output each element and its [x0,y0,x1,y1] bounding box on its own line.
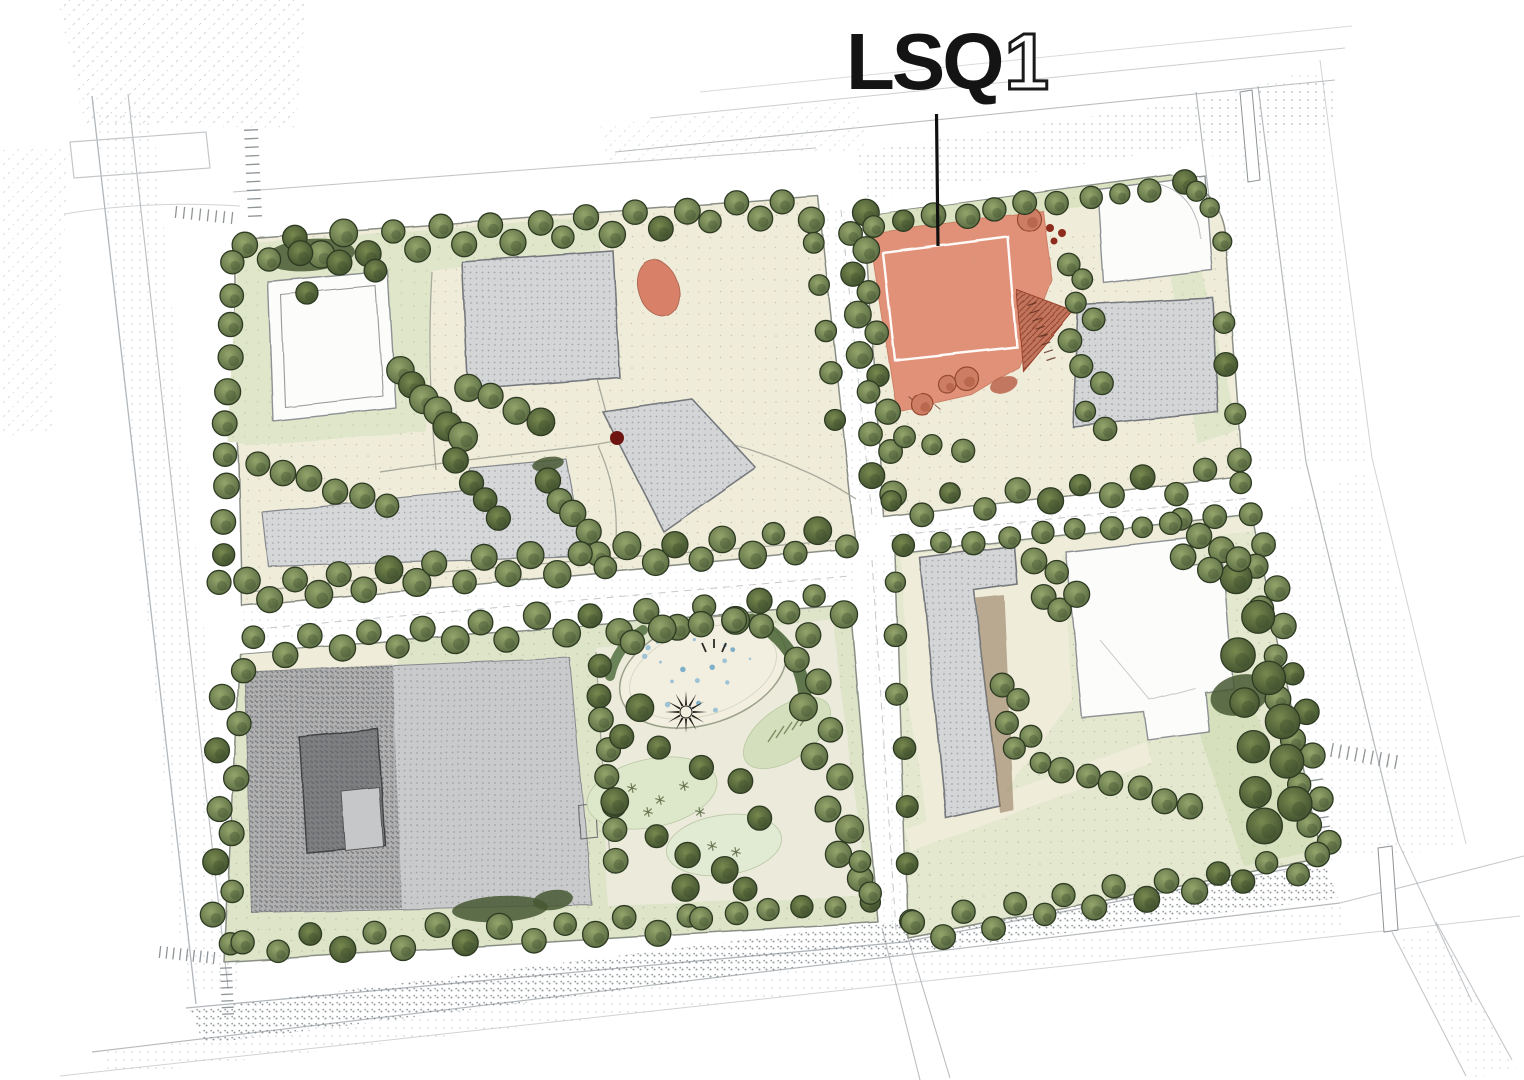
tree [675,198,701,224]
tree [815,320,836,341]
tree [494,627,519,652]
plaza-feature-dot [610,431,624,445]
crosswalk [244,130,262,217]
tree [1100,483,1125,508]
tree [1207,862,1230,885]
tree [221,880,243,902]
tree [1052,884,1075,907]
tree [806,669,831,694]
tree [626,694,654,722]
site-plan-map [0,0,1524,1080]
tree [1110,184,1130,204]
tree [1165,483,1188,506]
tree [583,921,609,947]
tree [376,494,399,517]
tree [554,913,576,935]
tree [815,796,841,822]
tree [672,874,699,901]
tree [357,620,381,644]
tree [1305,842,1329,866]
tree [1221,638,1255,672]
tree [809,275,830,296]
tree [1007,689,1029,711]
tree [1102,875,1125,898]
tree [1082,308,1105,331]
tree [699,210,721,232]
tree [1013,191,1037,215]
tree [956,204,980,228]
tree [820,362,842,384]
tree [452,232,477,257]
tree [645,825,668,848]
tree [962,532,985,555]
tree [1082,895,1107,920]
tree [749,614,773,638]
tree [1226,547,1251,572]
tree [689,547,713,571]
tree [612,906,635,929]
tree [220,284,243,307]
tree [1182,878,1208,904]
tree [1252,661,1285,694]
tree [777,601,800,624]
tree [246,452,270,476]
tree [875,399,900,424]
tree [288,241,313,266]
title-unit-number: 1 [1004,17,1046,106]
tree [647,736,670,759]
tree [1240,777,1271,808]
tree [623,200,647,224]
tree [952,900,975,923]
tree [722,608,747,633]
tree [553,619,581,647]
tree [865,321,888,344]
tree [884,624,906,646]
tree [748,806,772,830]
tree [351,577,376,602]
tree [231,931,254,954]
crosswalk [220,968,234,1015]
accent-dot [1051,238,1058,245]
tree [910,503,934,527]
tree [386,635,409,658]
tree [791,896,813,918]
tree [762,523,784,545]
tree [728,769,753,794]
tree [283,567,308,592]
tree [922,435,942,455]
tree [323,479,348,504]
tree [1203,505,1227,529]
tree [748,206,773,231]
tree [825,841,851,867]
tree [931,925,956,950]
tree [827,764,853,790]
tree [931,532,951,552]
tree [881,491,901,511]
tree [257,587,283,613]
tree [527,408,555,436]
tree [1038,488,1064,514]
tree [846,342,873,369]
tree [595,765,619,789]
tree [227,712,251,736]
tree [495,561,521,587]
tree [610,725,634,749]
tree [1065,292,1086,313]
tree [1070,355,1093,378]
tree [983,198,1006,221]
tree [211,510,236,535]
tree [422,551,447,576]
tree [603,818,627,842]
tree [859,422,883,446]
water-speckle [693,638,696,641]
tree [886,683,908,705]
tree [234,567,260,593]
tree [940,483,960,503]
tree [1270,744,1304,778]
tree [205,738,230,763]
tree [221,251,244,274]
tree [242,626,264,648]
water-speckle [670,679,674,683]
tree [803,585,825,607]
tree [587,684,611,708]
tree [517,542,544,569]
tree [836,815,864,843]
accent-dot [1046,224,1054,232]
tree [257,248,280,271]
tree [270,460,295,485]
tree [1004,892,1027,915]
tree [688,612,713,637]
tree [845,301,872,328]
tree [1100,517,1123,540]
tree [471,544,497,570]
tree [603,849,628,874]
tree [1064,581,1090,607]
tree [830,601,857,628]
tree [326,562,351,587]
tree [893,210,914,231]
tree [329,635,355,661]
tree [1134,886,1160,912]
tree [594,556,616,578]
tree [552,226,574,248]
tree [999,527,1021,549]
tree [207,570,231,594]
water-speckle [730,647,735,652]
tree [896,853,917,874]
tree [213,443,236,466]
tree [1170,544,1195,569]
tree [1230,688,1259,717]
tree [273,642,298,667]
tree [503,397,530,424]
tree [1098,771,1122,795]
tree [1194,458,1217,481]
tree [1264,576,1289,601]
tree [1200,198,1219,217]
tree [725,191,749,215]
tree [1080,186,1102,208]
tree [405,236,431,262]
tree [327,250,352,275]
tree [207,797,232,822]
tree [857,281,880,304]
tree [350,483,375,508]
tree [1072,269,1093,290]
tree [1030,753,1051,774]
tree [468,610,493,635]
tree [523,602,550,629]
tree [1045,192,1068,215]
tree [849,851,870,872]
tree [790,693,818,721]
tree [478,213,502,237]
tree [212,411,237,436]
tree [733,877,757,901]
tree [1049,758,1074,783]
median-island [1378,846,1398,932]
tree [798,207,824,233]
tree [739,541,766,568]
tree [588,654,611,677]
tree [528,211,553,236]
tree [573,205,598,230]
water-speckle [665,702,671,708]
tree [770,190,794,214]
tree [1265,704,1300,739]
crosswalk [175,206,232,224]
tree [1064,519,1085,540]
tree [1130,465,1155,490]
tree [522,929,546,953]
tree [784,541,807,564]
tree [690,907,713,930]
tree [853,237,879,263]
tree [1237,731,1269,763]
tree [382,220,405,243]
tree [375,556,403,584]
tree [1214,353,1238,377]
tree [1070,475,1091,496]
tree [209,684,234,709]
tree [429,214,453,238]
tree [1198,557,1223,582]
tree [1187,523,1212,548]
tree [662,532,688,558]
tree [675,842,700,867]
tree [452,930,478,956]
tree [892,534,914,556]
tree [1239,503,1262,526]
tree [1186,181,1206,201]
tree [218,312,242,336]
tree [1128,776,1152,800]
water-speckle [680,667,686,673]
tree [1138,179,1161,202]
tree [1058,329,1082,353]
tree [601,788,628,815]
tree [893,737,915,759]
tree [709,526,735,552]
tree [796,623,821,648]
tree [589,707,614,732]
water-speckle [722,658,727,663]
tree [982,917,1006,941]
tree [568,542,592,566]
tree [1247,808,1283,844]
tree [711,857,738,884]
tree [901,910,925,934]
tree [894,426,916,448]
tree [1252,533,1276,557]
tree [620,630,644,654]
tree [885,572,905,592]
tree [747,588,772,613]
tree [1005,478,1030,503]
tree [443,448,468,473]
tree [1177,794,1202,819]
tree [974,498,996,520]
tree [296,466,322,492]
tree [448,422,477,451]
tree [1213,312,1234,333]
tree [599,221,625,247]
tree [576,519,601,544]
tree [544,561,571,588]
tree [224,766,249,791]
tree [1154,869,1178,893]
tree [500,229,526,255]
tree [825,410,846,431]
tree [391,936,416,961]
accent-dot [1058,229,1066,237]
callout-line [937,114,939,246]
tree [487,913,513,939]
tree [1132,517,1152,537]
water-speckle [642,654,647,659]
tree [804,517,832,545]
tree [203,849,229,875]
tree [801,743,827,769]
tree [330,219,358,247]
tree [896,796,918,818]
water-speckle [695,678,700,683]
tree [859,882,881,904]
tree [689,756,713,780]
tree [218,345,243,370]
tree [1213,232,1232,251]
tree [645,920,671,946]
tree [1045,561,1068,584]
tree [486,506,510,530]
tree [364,259,387,282]
tree [478,383,503,408]
tree [296,282,318,304]
tree [1230,472,1251,493]
tree [1077,764,1100,787]
tree [219,821,244,846]
tree [1231,870,1254,893]
tree [825,897,846,918]
tree [757,899,779,921]
tree [425,913,450,938]
tree [1242,600,1275,633]
tree [299,923,321,945]
site-plan-page: LSQ1 [0,0,1524,1080]
tree [330,936,356,962]
tree [1160,512,1182,534]
tree [200,902,225,927]
water-speckle [659,661,662,664]
tree [1225,403,1246,424]
plan-title: LSQ1 [846,22,1046,102]
tree [863,216,885,238]
tree [836,535,859,558]
tree [648,615,676,643]
tree [784,647,809,672]
tree [1278,787,1312,821]
tree [1091,372,1114,395]
title-project: LSQ [846,17,1001,106]
tree [442,626,470,654]
tree [857,381,879,403]
tree [613,532,641,560]
water-speckle [709,664,714,669]
tree [996,711,1019,734]
tree [725,902,747,924]
tree [1152,789,1177,814]
tree [1075,401,1095,421]
tree [215,379,241,405]
tree [921,203,945,227]
tree [1309,787,1333,811]
tree [938,375,956,393]
tree [1256,852,1278,874]
water-speckle [713,708,718,713]
tree [1021,548,1047,574]
tree [214,473,239,498]
tree [298,624,322,648]
tree [859,463,885,489]
water-speckle [645,645,650,650]
tree [952,439,975,462]
tree [1034,903,1056,925]
tree [803,232,824,253]
tree [1003,737,1025,759]
water-speckle [725,680,729,684]
tree [1032,521,1054,543]
tree [1287,863,1310,886]
tree [649,216,674,241]
tree [232,659,256,683]
tree [267,940,289,962]
tree [578,604,602,628]
tree [213,544,235,566]
tree [363,921,386,944]
tree [453,570,476,593]
water-speckle [749,658,751,660]
tree [1228,448,1251,471]
tree [818,718,842,742]
tree [1093,417,1116,440]
tree [410,616,435,641]
tree [305,580,333,608]
